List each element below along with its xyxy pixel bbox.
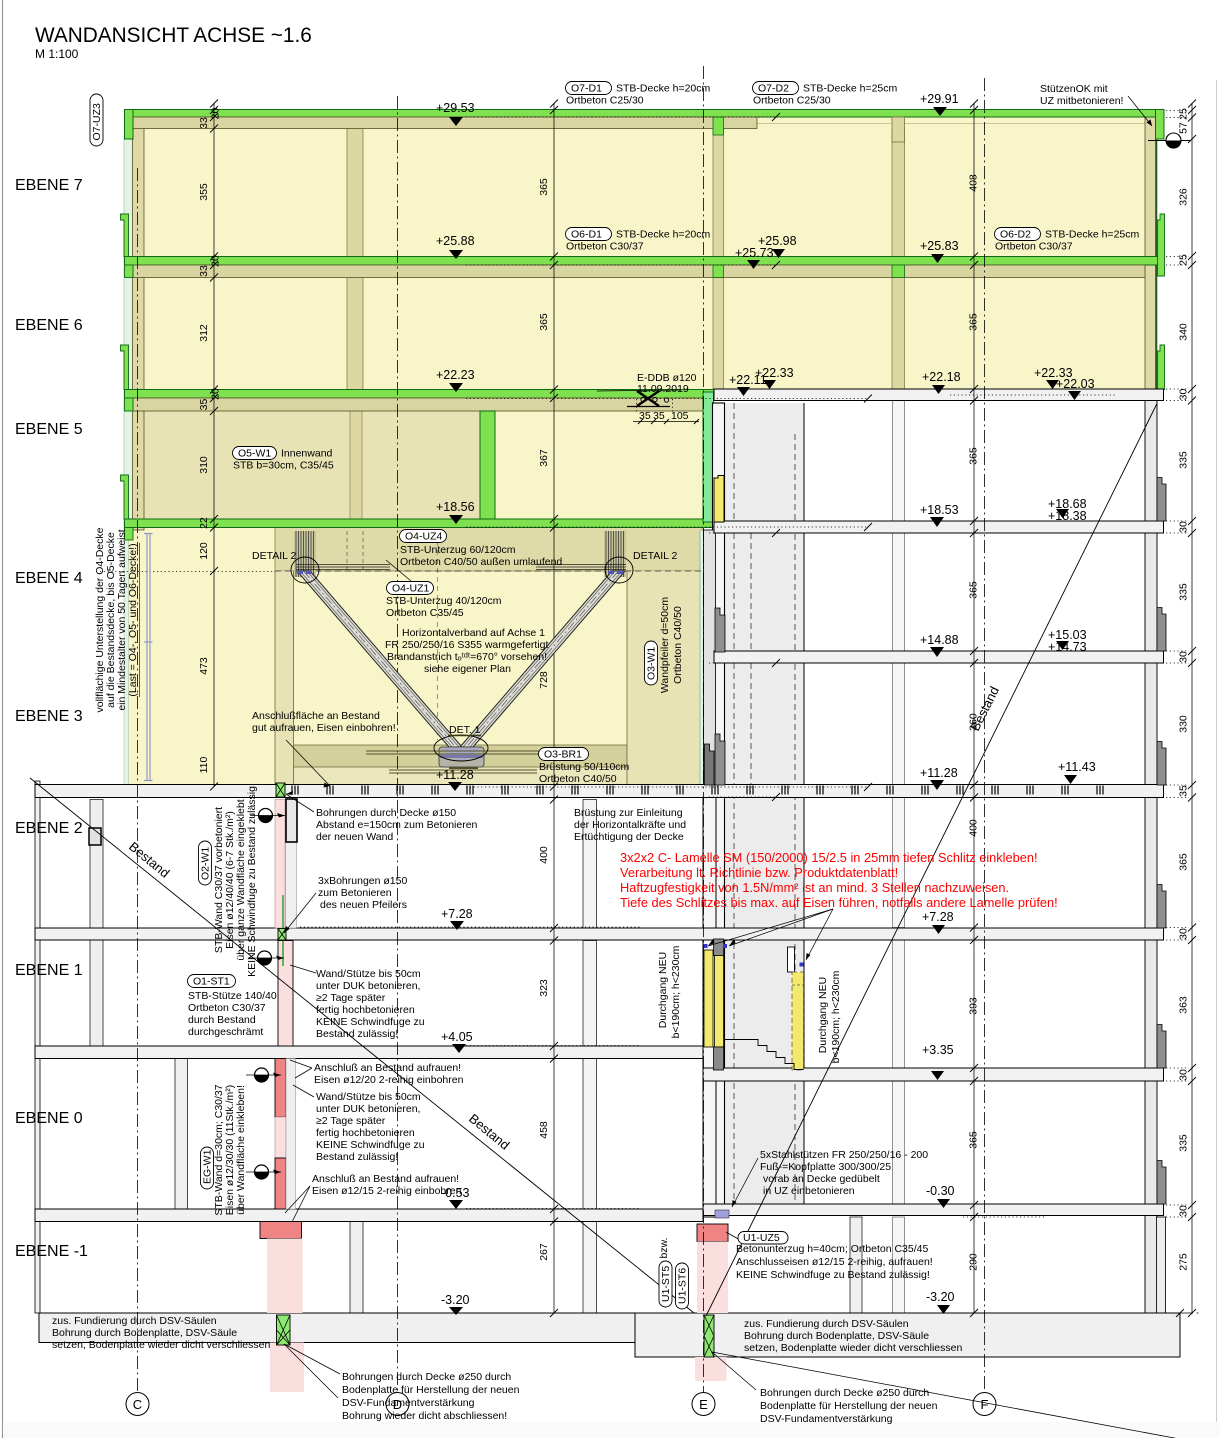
svg-text:Bestand zulässig!: Bestand zulässig! [316,1151,398,1163]
svg-text:KEINE Schwindfuge zu Bestand z: KEINE Schwindfuge zu Bestand zulässig! [246,783,258,977]
svg-text:Bohrungen durch Decke ø250 dur: Bohrungen durch Decke ø250 durch [342,1371,511,1383]
svg-text:360: 360 [968,713,980,731]
svg-text:STB-Decke h=20cm: STB-Decke h=20cm [616,83,710,95]
svg-text:Bohrungen durch Decke ø150: Bohrungen durch Decke ø150 [316,807,456,819]
svg-text:120: 120 [198,542,210,560]
svg-text:Wand/Stütze bis 50cm: Wand/Stütze bis 50cm [316,968,421,980]
svg-text:312: 312 [198,324,210,342]
svg-text:-3.20: -3.20 [926,1290,955,1304]
svg-text:zus. Fundierung durch DSV-Säul: zus. Fundierung durch DSV-Säulen [52,1315,217,1327]
svg-text:DETAIL 2: DETAIL 2 [633,550,678,562]
svg-text:DSV-Fundamentverstärkung: DSV-Fundamentverstärkung [342,1397,475,1409]
svg-text:+22.33: +22.33 [755,366,794,380]
svg-text:30: 30 [1178,1205,1190,1217]
svg-text:365: 365 [968,313,980,331]
svg-text:Ortbeton C40/50: Ortbeton C40/50 [672,606,684,684]
svg-text:Ertüchtigung der Decke: Ertüchtigung der Decke [574,831,684,843]
svg-text:U1-ST5: U1-ST5 [660,1266,672,1302]
svg-text:≥2 Tage später: ≥2 Tage später [316,992,386,1004]
svg-text:EBENE 6: EBENE 6 [15,317,83,334]
svg-text:365: 365 [538,178,550,196]
svg-text:335: 335 [1178,1134,1190,1152]
svg-text:O7-D2: O7-D2 [758,83,789,95]
svg-text:3xBohrungen ø150: 3xBohrungen ø150 [318,875,407,887]
svg-text:Wand/Stütze bis 50cm: Wand/Stütze bis 50cm [316,1091,421,1103]
svg-text:+14.88: +14.88 [920,633,959,647]
svg-text:Durchgang NEU: Durchgang NEU [817,977,829,1053]
svg-text:EBENE 4: EBENE 4 [15,570,83,587]
svg-text:EBENE 3: EBENE 3 [15,708,83,725]
svg-text:267: 267 [538,1243,550,1261]
svg-text:20: 20 [210,255,222,267]
svg-text:400: 400 [968,819,980,837]
svg-text:+18.53: +18.53 [920,503,959,517]
svg-text:+22.23: +22.23 [436,368,475,382]
svg-text:+4.05: +4.05 [441,1030,473,1044]
svg-text:35: 35 [198,399,210,411]
svg-text:EBENE 7: EBENE 7 [15,177,83,194]
svg-text:365: 365 [968,581,980,599]
svg-text:EBENE 1: EBENE 1 [15,962,83,979]
svg-text:Tiefe des Schlitzes bis max. a: Tiefe des Schlitzes bis max. auf Eisen f… [620,895,1058,910]
svg-text:fertig hochbetonieren: fertig hochbetonieren [316,1004,415,1016]
svg-text:in UZ einbetonieren: in UZ einbetonieren [763,1185,855,1197]
svg-text:Brüstung 50/110cm: Brüstung 50/110cm [539,761,630,773]
svg-text:33: 33 [198,265,210,277]
svg-text:393: 393 [968,997,980,1015]
svg-text:35: 35 [639,410,651,422]
svg-text:30: 30 [1178,389,1190,401]
svg-text:STB-Stütze 140/40: STB-Stütze 140/40 [188,990,277,1002]
svg-text:E: E [699,1397,708,1412]
svg-text:+7.28: +7.28 [441,907,473,921]
svg-text:3x2x2 C- Lamelle SM (150/2000): 3x2x2 C- Lamelle SM (150/2000) 15/2.5 in… [620,850,1038,865]
svg-text:25: 25 [1178,108,1190,120]
svg-text:O7-D1: O7-D1 [571,83,602,95]
svg-text:408: 408 [968,174,980,192]
svg-text:EG-W1: EG-W1 [202,1149,214,1184]
svg-text:KEINE Schwindfuge zu Bestand z: KEINE Schwindfuge zu Bestand zulässig! [736,1269,930,1281]
svg-text:5xStahlstützen FR 250/250/16 -: 5xStahlstützen FR 250/250/16 - 200 [760,1149,928,1161]
svg-text:+18.56: +18.56 [436,500,475,514]
svg-text:M 1:100: M 1:100 [35,47,79,61]
svg-text:30: 30 [1178,521,1190,533]
svg-text:Betonunterzug h=40cm; Ortbeton: Betonunterzug h=40cm; Ortbeton C35/45 [736,1243,928,1255]
svg-text:335: 335 [1178,451,1190,469]
svg-text:Ortbeton C25/30: Ortbeton C25/30 [753,95,831,107]
svg-text:290: 290 [968,1253,980,1271]
svg-text:EBENE 2: EBENE 2 [15,820,83,837]
svg-text:O5-W1: O5-W1 [238,448,271,460]
svg-text:323: 323 [538,979,550,997]
svg-text:Verarbeitung lt. Richtlinie bz: Verarbeitung lt. Richtlinie bzw. Produkt… [620,865,898,880]
svg-text:+29.91: +29.91 [920,92,959,106]
svg-text:Ortbeton C30/37: Ortbeton C30/37 [995,241,1073,253]
svg-text:+25.73: +25.73 [735,246,774,260]
svg-text:335: 335 [1178,583,1190,601]
svg-text:zum Betonieren: zum Betonieren [318,887,392,899]
svg-text:O6-D1: O6-D1 [571,229,602,241]
svg-text:b<190cm; h<230cm: b<190cm; h<230cm [830,970,842,1063]
svg-text:20: 20 [210,108,222,120]
svg-text:STB-Decke h=25cm: STB-Decke h=25cm [803,83,897,95]
svg-text:275: 275 [1178,1253,1190,1271]
svg-text:365: 365 [538,313,550,331]
svg-text:+11.28: +11.28 [920,766,958,780]
svg-text:Horizontalverband auf Achse 1: Horizontalverband auf Achse 1 [402,627,545,639]
svg-text:-0.30: -0.30 [926,1184,955,1198]
svg-text:setzen, Bodenplatte wieder dic: setzen, Bodenplatte wieder dicht verschl… [52,1339,270,1351]
svg-text:+3.35: +3.35 [922,1043,954,1057]
svg-text:110: 110 [198,756,210,773]
svg-text:458: 458 [538,1121,550,1139]
svg-text:367: 367 [538,449,550,467]
svg-text:365: 365 [968,447,980,465]
svg-text:+25.88: +25.88 [436,234,475,248]
svg-text:STB-Unterzug 40/120cm: STB-Unterzug 40/120cm [386,595,502,607]
svg-text:O2-W1: O2-W1 [200,847,212,880]
svg-text:KEINE Schwindfuge zu: KEINE Schwindfuge zu [316,1139,425,1151]
svg-text:STB b=30cm, C35/45: STB b=30cm, C35/45 [233,460,334,472]
svg-text:Fuß-=Kopfplatte 300/300/25: Fuß-=Kopfplatte 300/300/25 [760,1161,891,1173]
svg-text:STB-Decke h=20cm: STB-Decke h=20cm [616,229,710,241]
svg-text:310: 310 [198,456,210,474]
svg-text:Ortbeton C25/30: Ortbeton C25/30 [566,95,644,107]
svg-text:EBENE 5: EBENE 5 [15,421,83,438]
svg-text:365: 365 [1178,853,1190,871]
svg-text:Anschluß an Bestand aufrauen!: Anschluß an Bestand aufrauen! [314,1062,461,1074]
svg-text:b<190cm; h<230cm: b<190cm; h<230cm [670,945,682,1038]
svg-text:zus. Fundierung durch DSV-Säul: zus. Fundierung durch DSV-Säulen [744,1318,909,1330]
svg-text:O7-UZ3: O7-UZ3 [91,103,103,141]
svg-text:+29.53: +29.53 [436,101,475,115]
svg-text:105: 105 [671,410,689,422]
svg-text:O1-ST1: O1-ST1 [193,976,230,988]
svg-text:Bohrung durch Bodenplatte, DSV: Bohrung durch Bodenplatte, DSV-Säule [744,1330,929,1342]
svg-text:gut aufrauen, Eisen einbohren!: gut aufrauen, Eisen einbohren! [252,722,396,734]
svg-text:StützenOK mit: StützenOK mit [1040,83,1108,95]
svg-text:Ortbeton C30/37: Ortbeton C30/37 [188,1002,266,1014]
svg-text:Ortbeton C35/45: Ortbeton C35/45 [386,607,464,619]
svg-text:340: 340 [1178,323,1190,341]
svg-text:WANDANSICHT ACHSE ~1.6: WANDANSICHT ACHSE ~1.6 [35,24,312,47]
svg-text:durch Bestand: durch Bestand [188,1014,256,1026]
svg-text:vorab an Decke gedübelt: vorab an Decke gedübelt [763,1173,880,1185]
svg-text:O3-W1: O3-W1 [646,647,658,680]
svg-text:bzw.: bzw. [658,1237,670,1258]
svg-text:EBENE -1: EBENE -1 [15,1243,88,1260]
svg-text:57: 57 [1178,122,1190,134]
svg-text:365: 365 [968,1131,980,1149]
svg-text:30: 30 [1178,928,1190,940]
svg-text:DET. 1: DET. 1 [449,724,481,736]
svg-text:durchgeschrämt: durchgeschrämt [188,1026,263,1038]
svg-text:+11.28: +11.28 [436,768,474,782]
svg-text:11.09.2019: 11.09.2019 [637,383,689,395]
svg-text:unter DUK betonieren,: unter DUK betonieren, [316,980,420,992]
svg-text:Wandpfeiler d=50cm: Wandpfeiler d=50cm [659,597,671,693]
svg-text:FR 250/250/16 S355 warmgeferti: FR 250/250/16 S355 warmgefertigt [385,639,549,651]
svg-text:Brüstung zur Einleitung: Brüstung zur Einleitung [574,807,683,819]
svg-text:U1-ST6: U1-ST6 [677,1268,689,1304]
svg-text:Ortbeton C40/50: Ortbeton C40/50 [539,773,617,785]
svg-text:O4-UZ1: O4-UZ1 [392,583,430,595]
svg-text:400: 400 [538,846,550,864]
svg-text:Bohrung wieder dicht abschlies: Bohrung wieder dicht abschliessen! [342,1410,507,1422]
svg-text:O6-D2: O6-D2 [1000,229,1031,241]
svg-text:KEINE Schwindfuge zu: KEINE Schwindfuge zu [316,1016,425,1028]
svg-text:C: C [133,1397,142,1412]
svg-text:+25.83: +25.83 [920,239,959,253]
svg-text:+22.18: +22.18 [922,370,961,384]
svg-text:22: 22 [198,517,210,529]
svg-text:+22.03: +22.03 [1056,377,1095,391]
svg-text:Bohrung durch Bodenplatte, DSV: Bohrung durch Bodenplatte, DSV-Säule [52,1327,237,1339]
svg-text:Eisen ø12/15 2-reihig einbohre: Eisen ø12/15 2-reihig einbohren [312,1185,462,1197]
svg-text:der neuen Wand: der neuen Wand [316,831,393,843]
svg-text:Brandanstrich tₒᵗᵈᵗ=670° vorse: Brandanstrich tₒᵗᵈᵗ=670° vorsehen! [387,651,547,663]
svg-text:setzen, Bodenplatte wieder dic: setzen, Bodenplatte wieder dicht verschl… [744,1342,962,1354]
svg-text:728: 728 [538,671,550,689]
svg-text:Bohrungen durch Decke ø250 dur: Bohrungen durch Decke ø250 durch [760,1387,929,1399]
svg-text:326: 326 [1178,188,1190,206]
svg-text:STB-Unterzug 60/120cm: STB-Unterzug 60/120cm [400,544,516,556]
svg-text:Ortbeton C30/37: Ortbeton C30/37 [566,241,644,253]
svg-text:fertig hochbetonieren: fertig hochbetonieren [316,1127,415,1139]
svg-text:Bestand zulässig!: Bestand zulässig! [316,1028,398,1040]
svg-text:Bodenplatte für Herstellung de: Bodenplatte für Herstellung der neuen [760,1400,938,1412]
svg-text:+7.28: +7.28 [922,910,954,924]
svg-text:-3.20: -3.20 [441,1293,470,1307]
svg-text:30: 30 [1178,651,1190,663]
svg-text:+11.43: +11.43 [1058,760,1096,774]
svg-text:O3-BR1: O3-BR1 [544,749,582,761]
svg-text:O4-UZ4: O4-UZ4 [405,531,443,543]
svg-text:≥2 Tage später: ≥2 Tage später [316,1115,386,1127]
svg-text:Anschluß an Bestand aufrauen!: Anschluß an Bestand aufrauen! [312,1173,459,1185]
svg-text:(Last = O4-, O5- und O6-Decke!: (Last = O4-, O5- und O6-Decke!) [127,543,139,696]
svg-text:über Wandfläche einkleben!: über Wandfläche einkleben! [235,1085,247,1215]
svg-text:30: 30 [1178,1069,1190,1081]
svg-text:25: 25 [1178,254,1190,266]
svg-text:Bodenplatte für Herstellung de: Bodenplatte für Herstellung der neuen [342,1384,520,1396]
svg-text:DETAIL 2: DETAIL 2 [252,550,297,562]
svg-text:33: 33 [198,117,210,129]
svg-text:Anschlußfläche an Bestand: Anschlußfläche an Bestand [252,710,380,722]
svg-text:Eisen ø12/20 2-reihig einbohre: Eisen ø12/20 2-reihig einbohren [314,1074,464,1086]
svg-text:Abstand e=150cm zum Betonieren: Abstand e=150cm zum Betonieren [316,819,478,831]
svg-text:330: 330 [1178,715,1190,733]
svg-text:EBENE 0: EBENE 0 [15,1110,83,1127]
svg-text:Ortbeton C40/50 außen umlaufen: Ortbeton C40/50 außen umlaufend [400,556,562,568]
svg-text:363: 363 [1178,996,1190,1014]
svg-text:F: F [981,1397,989,1412]
svg-text:Innenwand: Innenwand [281,448,333,460]
svg-text:Durchgang NEU: Durchgang NEU [657,952,669,1028]
svg-text:20: 20 [210,388,222,400]
svg-text:unter DUK betonieren,: unter DUK betonieren, [316,1103,420,1115]
svg-text:Anschlusseisen ø12/15 2-reihig: Anschlusseisen ø12/15 2-reihig, aufrauen… [736,1256,933,1268]
svg-text:des neuen Pfeilers: des neuen Pfeilers [320,899,407,911]
svg-text:UZ mitbetonieren!: UZ mitbetonieren! [1040,95,1123,107]
svg-text:der Horizontalkräfte und: der Horizontalkräfte und [574,819,686,831]
svg-text:STB-Decke h=25cm: STB-Decke h=25cm [1045,229,1139,241]
svg-text:Haftzugfestigkeit von 1.5N/mm²: Haftzugfestigkeit von 1.5N/mm² ist an mi… [620,880,1009,895]
svg-text:35: 35 [1178,785,1190,797]
svg-text:355: 355 [198,183,210,201]
svg-text:473: 473 [198,657,210,675]
svg-text:DSV-Fundamentverstärkung: DSV-Fundamentverstärkung [760,1413,893,1425]
svg-text:siehe eigener Plan: siehe eigener Plan [424,663,511,675]
